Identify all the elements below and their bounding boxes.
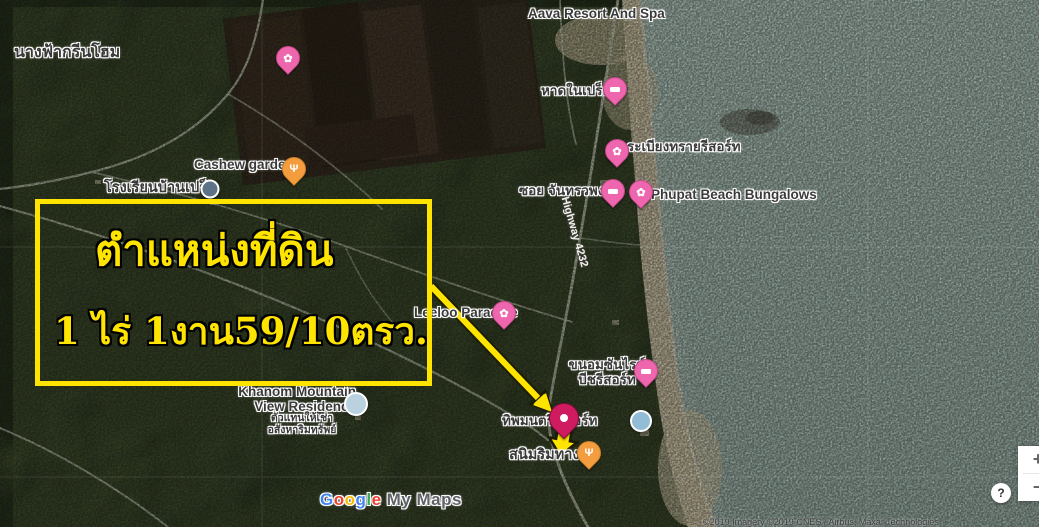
zoom-in-button[interactable]: + <box>1018 446 1039 473</box>
bed-icon <box>604 78 626 100</box>
resort-marker[interactable] <box>630 410 652 432</box>
logo-letter: G <box>320 490 334 509</box>
mymaps-viewport[interactable]: นางฟ้ากรีนโฮม Cashew garden โรงเรียนบ้าน… <box>0 0 1039 527</box>
help-button[interactable]: ? <box>991 483 1011 503</box>
map-label-phupat: Phupat Beach Bungalows <box>651 188 817 203</box>
spa-icon: ✿ <box>630 181 652 203</box>
school-marker[interactable] <box>201 180 220 199</box>
map-label-khanom-line1: Khanom Mountain <box>238 385 356 400</box>
map-label-rabiang: ระเบียงทรายรีสอร์ท <box>627 140 741 155</box>
restaurant-icon: Ψ <box>283 158 305 180</box>
zoom-controls: + − <box>1018 446 1039 501</box>
land-annotation-box: ตำแหน่งที่ดิน 1 ไร่ 1งาน59/10ตรว. <box>35 199 432 386</box>
zoom-out-button[interactable]: − <box>1018 474 1039 501</box>
map-attribution: ©2019 Imagery ©2019 CNES / Airbus, Maxar… <box>703 517 939 527</box>
logo-letter: g <box>356 490 367 509</box>
map-label-cashew: Cashew garden <box>194 158 294 173</box>
map-label-sanim: สนิมริมทาง <box>509 448 579 464</box>
map-label-khanom-sub2: อสังหาริมทรัพย์ <box>250 425 354 437</box>
google-mymaps-logo: GoogleMy Maps <box>320 490 462 510</box>
bed-icon <box>602 180 624 202</box>
annotation-size: 1 ไร่ 1งาน59/10ตรว. <box>54 302 428 361</box>
spa-icon: ✿ <box>277 47 299 69</box>
spa-icon: ✿ <box>606 140 628 162</box>
spa-icon: ✿ <box>493 302 515 324</box>
logo-mymaps-text: My Maps <box>387 490 462 509</box>
map-label-khanom-sub1: ตัวแทนให้เช่า <box>250 413 354 425</box>
logo-letter: o <box>345 490 356 509</box>
pin-dot <box>550 404 578 432</box>
bed-icon <box>635 360 657 382</box>
map-label-khanom-mountain: Khanom Mountain View Residence <box>238 385 356 415</box>
logo-letter: e <box>372 490 382 509</box>
map-label-nangfa: นางฟ้ากรีนโฮม <box>14 44 120 62</box>
residence-marker[interactable] <box>344 392 368 416</box>
logo-letter: o <box>334 490 345 509</box>
map-label-hadnaipret: หาดในเปร็ด <box>541 84 611 99</box>
map-label-aava: Aava Resort And Spa <box>528 7 665 22</box>
annotation-title: ตำแหน่งที่ดิน <box>95 218 334 284</box>
map-label-khanom-sub: ตัวแทนให้เช่า อสังหาริมทรัพย์ <box>250 413 354 436</box>
restaurant-icon: Ψ <box>578 442 600 464</box>
